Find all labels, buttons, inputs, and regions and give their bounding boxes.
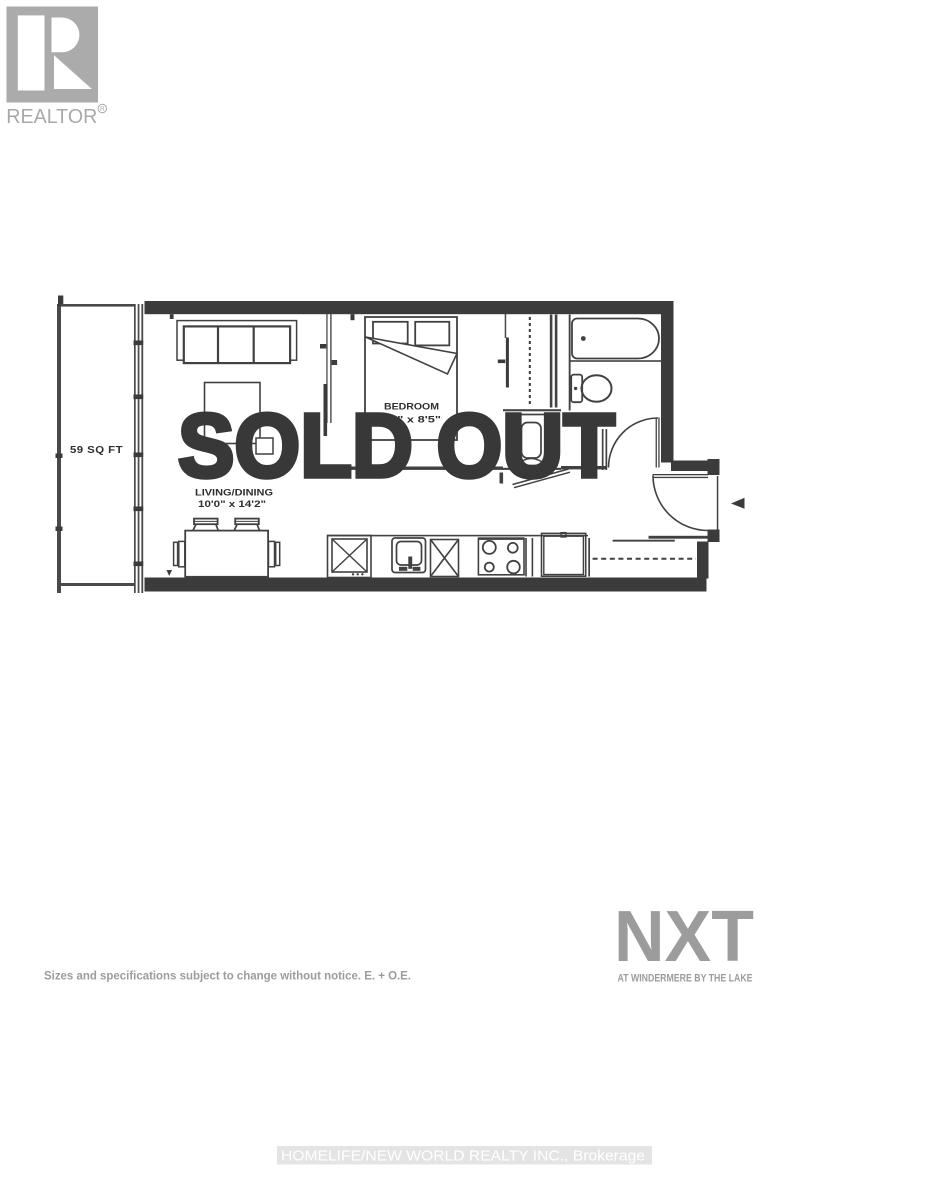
- svg-text:59 SQ FT: 59 SQ FT: [70, 444, 123, 456]
- svg-text:AT WINDERMERE BY THE LAKE: AT WINDERMERE BY THE LAKE: [618, 973, 753, 985]
- svg-text:Sizes and specifications subje: Sizes and specifications subject to chan…: [44, 969, 411, 983]
- svg-text:NXT: NXT: [614, 897, 754, 977]
- svg-text:10'0" x 14'2": 10'0" x 14'2": [198, 499, 266, 510]
- svg-text:R: R: [100, 106, 105, 113]
- svg-text:HOMELIFE/NEW WORLD REALTY INC.: HOMELIFE/NEW WORLD REALTY INC., Brokerag…: [281, 1148, 645, 1165]
- svg-text:REALTOR: REALTOR: [6, 105, 97, 128]
- svg-text:SOLD OUT: SOLD OUT: [178, 397, 615, 497]
